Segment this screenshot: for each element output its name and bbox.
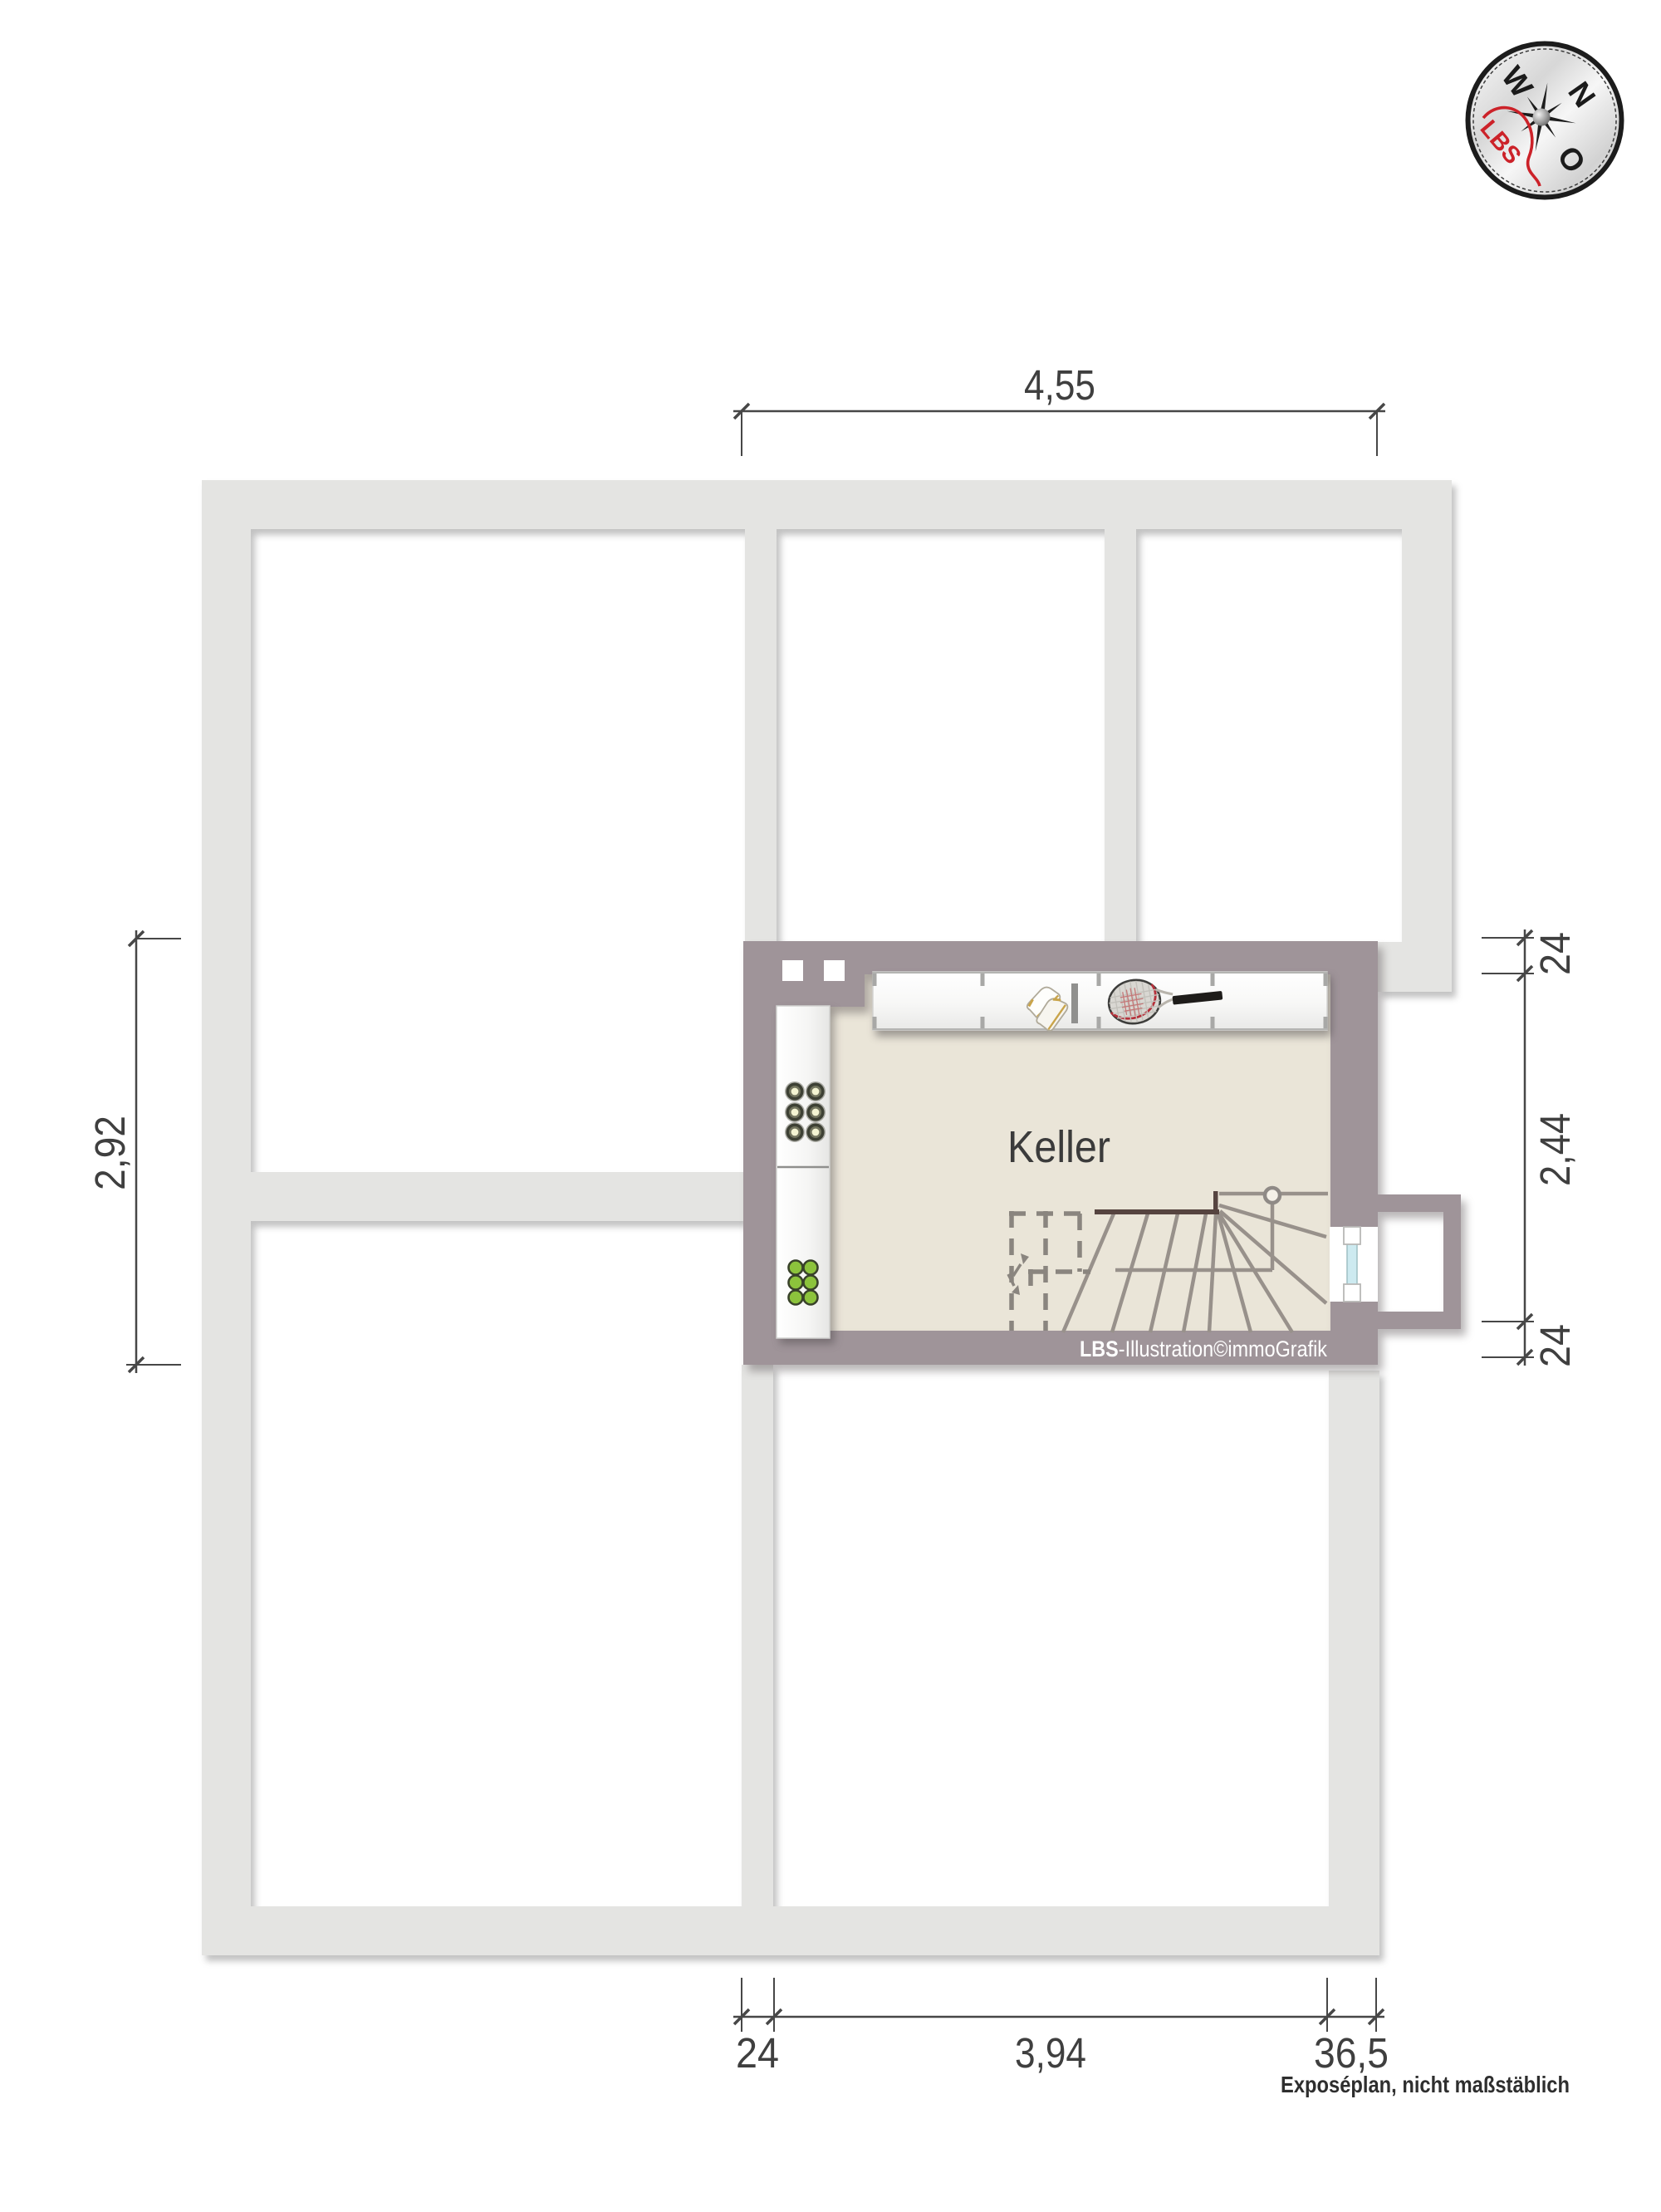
svg-text:24: 24 — [736, 2029, 779, 2077]
svg-text:24: 24 — [1531, 1324, 1579, 1367]
svg-text:3,94: 3,94 — [1015, 2029, 1086, 2077]
svg-text:Exposéplan, nicht maßstäblich: Exposéplan, nicht maßstäblich — [1281, 2072, 1570, 2097]
svg-text:2,92: 2,92 — [86, 1116, 134, 1190]
svg-text:4,55: 4,55 — [1024, 361, 1095, 409]
svg-text:24: 24 — [1531, 932, 1579, 975]
svg-text:36,5: 36,5 — [1314, 2029, 1389, 2077]
svg-text:2,44: 2,44 — [1531, 1113, 1579, 1186]
svg-text:Keller: Keller — [1007, 1122, 1110, 1172]
svg-text:LBS-Illustration©immoGrafik: LBS-Illustration©immoGrafik — [1080, 1337, 1327, 1361]
